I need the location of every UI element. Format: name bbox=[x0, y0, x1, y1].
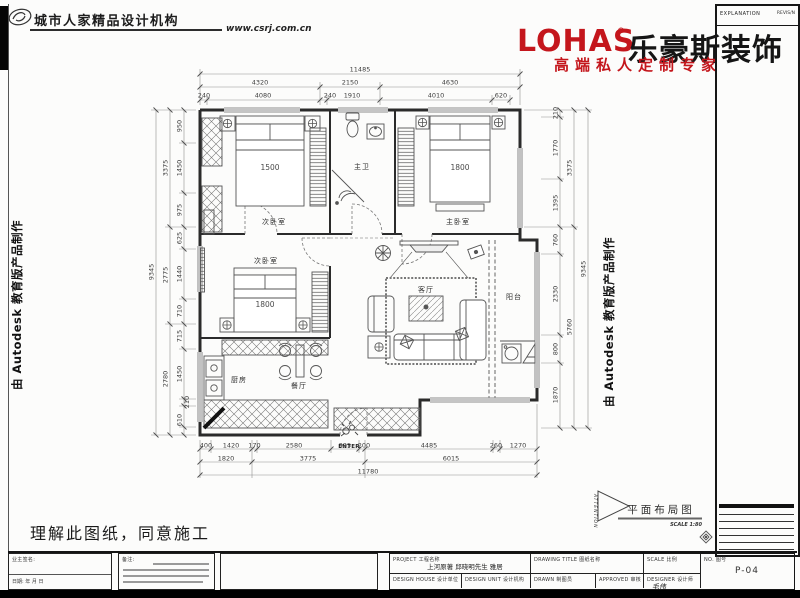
dim-text: 2150 bbox=[342, 79, 359, 87]
sheet-number-value: P-04 bbox=[701, 566, 793, 576]
dim-text: 760 bbox=[552, 234, 560, 246]
dim-text: 1870 bbox=[552, 387, 560, 404]
dim-text: 9345 bbox=[148, 264, 156, 281]
dim-text: 1820 bbox=[218, 455, 235, 463]
approved-label: APPROVED 审核 bbox=[599, 576, 641, 583]
dimension-text-top: 11485 4320 2150 4630 240 4080 240 1910 4… bbox=[198, 66, 507, 100]
owner-sign-label: 业主签名: bbox=[12, 556, 35, 563]
dim-text: 625 bbox=[176, 232, 184, 244]
drawn-label: DRAWN 制图员 bbox=[534, 576, 572, 583]
dim-text: 800 bbox=[552, 343, 560, 355]
dim-text: 5760 bbox=[566, 319, 574, 336]
empty-cell bbox=[220, 553, 378, 590]
remark-cell: 备注: bbox=[118, 553, 215, 590]
room-label-living: 客厅 bbox=[418, 285, 434, 294]
bedroom1-furniture bbox=[202, 116, 326, 234]
dim-text: 170 bbox=[248, 442, 260, 450]
approval-note: 理解此图纸，同意施工 bbox=[30, 520, 210, 544]
room-label-balcony: 阳台 bbox=[506, 292, 522, 301]
speaker-icon bbox=[468, 245, 485, 259]
living-room-furniture bbox=[368, 241, 486, 364]
dim-text: 610 bbox=[176, 414, 184, 426]
dim-text: 400 bbox=[200, 442, 212, 450]
lamp-icon bbox=[375, 343, 383, 351]
bed-size-label: 1500 bbox=[260, 163, 279, 172]
figure-title: 平面布局图 bbox=[627, 504, 695, 516]
balcony-slider bbox=[489, 240, 495, 400]
project-cell: PROJECT 工程名称 上河原著 邱晓明先生 雅居 bbox=[390, 554, 531, 573]
scale-cell: SCALE 比例 bbox=[644, 554, 701, 573]
lamp-icon bbox=[308, 119, 316, 127]
bed-size-label: 1800 bbox=[450, 163, 469, 172]
lamp-icon bbox=[223, 119, 231, 127]
fine-print-line bbox=[123, 575, 209, 577]
dim-text: 210 bbox=[183, 396, 191, 408]
dim-text: 1910 bbox=[344, 92, 361, 100]
dimension-text-bottom: 400 1420 170 2580 995 200 4485 260 1270 … bbox=[200, 442, 526, 476]
room-label-bedroom1: 次卧室 bbox=[262, 217, 286, 226]
room-label-master: 主卧室 bbox=[446, 217, 470, 226]
lamp-icon bbox=[223, 321, 231, 329]
room-label-kitchen: 厨房 bbox=[231, 375, 247, 384]
dim-text: 11780 bbox=[358, 468, 379, 476]
project-value: 上河原著 邱晓明先生 雅居 bbox=[400, 561, 530, 571]
dim-text: 2330 bbox=[552, 286, 560, 303]
dim-text: 1450 bbox=[176, 366, 184, 383]
dim-text: 1270 bbox=[510, 442, 527, 450]
lamp-icon bbox=[418, 118, 426, 126]
lamp-icon bbox=[494, 118, 502, 126]
designer-cell: DESIGNER 设计师 毛伟 bbox=[644, 573, 701, 588]
plant-icon bbox=[376, 246, 391, 261]
room-label-bath: 主卫 bbox=[354, 162, 370, 171]
dim-text: 3375 bbox=[566, 160, 574, 177]
dim-text: 950 bbox=[176, 120, 184, 132]
remark-label: 备注: bbox=[122, 556, 135, 563]
dim-text: 3775 bbox=[300, 455, 317, 463]
dim-text: 6015 bbox=[443, 455, 460, 463]
sheet-number-label: NO. 图号 bbox=[704, 556, 726, 563]
owner-cell-divider bbox=[9, 574, 111, 575]
drawing-title-label: DRAWING TITLE 图纸名称 bbox=[534, 556, 600, 563]
dim-text: 1450 bbox=[176, 160, 184, 177]
fine-print-line bbox=[123, 581, 203, 583]
titleblock-table: PROJECT 工程名称 上河原著 邱晓明先生 雅居 DESIGN HOUSE … bbox=[389, 553, 795, 590]
dim-text: 1440 bbox=[176, 266, 184, 283]
dim-text: 620 bbox=[495, 92, 507, 100]
drawing-sheet: 城市人家精品设计机构 www.csrj.com.cn LOHAS ® 乐豪斯装饰… bbox=[0, 0, 800, 598]
dim-text: 1770 bbox=[552, 140, 560, 157]
dim-text: 2580 bbox=[286, 442, 303, 450]
dim-text: 4630 bbox=[442, 79, 459, 87]
design-house-label: DESIGN HOUSE 设计单位 bbox=[393, 576, 458, 583]
dim-text: 240 bbox=[198, 92, 210, 100]
design-unit-cell: DESIGN UNIT 设计机构 bbox=[462, 573, 531, 588]
lamp-icon bbox=[299, 321, 307, 329]
dim-text: 715 bbox=[176, 330, 184, 342]
dim-text: 210 bbox=[552, 107, 560, 119]
dim-text: 2775 bbox=[162, 267, 170, 284]
sheet-number-cell: NO. 图号 P-04 bbox=[701, 554, 793, 588]
date-label: 日期: 年 月 日 bbox=[12, 578, 43, 585]
dim-text: 3375 bbox=[162, 160, 170, 177]
dimension-text-left: 9345 3375 2775 2780 950 1450 975 625 144… bbox=[148, 120, 192, 426]
dimension-text-right: 9345 3375 5760 210 1770 1395 760 2330 80… bbox=[552, 107, 588, 403]
owner-signature-cell: 业主签名: 日期: 年 月 日 bbox=[8, 553, 112, 590]
designer-value: 毛伟 bbox=[652, 582, 666, 592]
dim-text: 975 bbox=[176, 204, 184, 216]
attention-label: ATTENTION bbox=[592, 493, 598, 528]
kitchen-furniture bbox=[204, 340, 420, 430]
figure-scale: SCALE 1:80 bbox=[670, 522, 702, 528]
dim-text: 4010 bbox=[428, 92, 445, 100]
dim-text: 260 bbox=[490, 442, 502, 450]
attention-flag-icon bbox=[598, 491, 629, 521]
scale-label: SCALE 比例 bbox=[647, 556, 677, 563]
room-label-dining: 餐厅 bbox=[291, 381, 307, 390]
fine-print-line bbox=[123, 569, 209, 571]
enter-label: ENTER bbox=[338, 444, 360, 450]
room-label-bedroom2: 次卧室 bbox=[254, 256, 278, 265]
dim-text: 4080 bbox=[255, 92, 272, 100]
bathroom-fixtures bbox=[332, 113, 384, 204]
figure-title-underline bbox=[618, 518, 702, 520]
diamond-ornament-icon bbox=[700, 531, 712, 543]
approved-cell: APPROVED 审核 bbox=[596, 573, 644, 588]
drawn-cell: DRAWN 制图员 bbox=[531, 573, 596, 588]
drawing-title-cell: DRAWING TITLE 图纸名称 bbox=[531, 554, 644, 573]
dim-text: 1420 bbox=[223, 442, 240, 450]
figure-title-group: ATTENTION 平面布局图 SCALE 1:80 bbox=[592, 491, 712, 543]
dim-text: 240 bbox=[324, 92, 336, 100]
design-house-cell: DESIGN HOUSE 设计单位 bbox=[390, 573, 462, 588]
dim-text: 9345 bbox=[580, 261, 588, 278]
floor-plan: 11485 4320 2150 4630 240 4080 240 1910 4… bbox=[0, 0, 800, 598]
dim-text: 1395 bbox=[552, 195, 560, 212]
dim-text: 2780 bbox=[162, 371, 170, 388]
design-unit-label: DESIGN UNIT 设计机构 bbox=[465, 576, 524, 583]
balcony-furniture bbox=[500, 341, 535, 363]
dim-text: 11485 bbox=[350, 66, 371, 74]
dim-text: 4485 bbox=[421, 442, 438, 450]
fine-print-line bbox=[153, 563, 209, 565]
bed-size-label: 1800 bbox=[255, 300, 274, 309]
dim-text: 4320 bbox=[252, 79, 269, 87]
dim-text: 710 bbox=[176, 305, 184, 317]
